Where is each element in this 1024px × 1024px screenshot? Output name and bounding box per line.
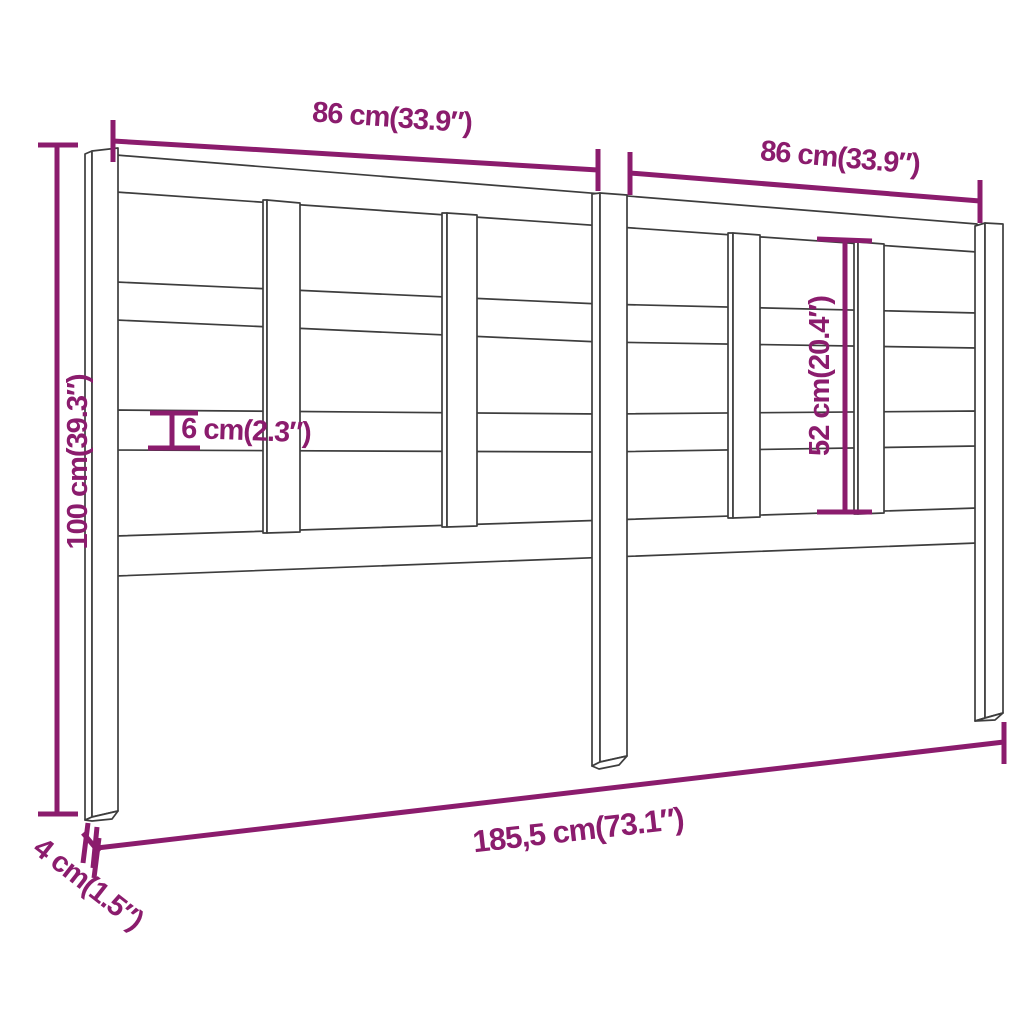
vertical-divider-4 (854, 242, 884, 514)
right-post (975, 223, 1003, 721)
dimension-overall-width: 185,5 cm(73.1″) (93, 722, 1004, 868)
dimension-label-overall-width: 185,5 cm(73.1″) (471, 801, 685, 860)
upper-slat (116, 282, 977, 348)
headboard-dimension-drawing: 86 cm(33.9″) 86 cm(33.9″) 100 cm(39.3″) … (0, 0, 1024, 1024)
bottom-rail (116, 508, 977, 576)
dimension-post-depth: 4 cm(1.5″) (27, 823, 149, 937)
dimension-label-overall-height: 100 cm(39.3″) (62, 374, 94, 549)
vertical-divider-1 (263, 200, 300, 533)
dimension-line (630, 173, 980, 201)
headboard-structure (85, 148, 1003, 821)
dimension-label-inner-opening-height: 52 cm(20.4″) (804, 296, 836, 456)
dimension-label-top-right-width: 86 cm(33.9″) (759, 135, 921, 181)
dimension-slat-height: 6 cm(2.3″) (148, 413, 312, 450)
dimension-label-top-left-width: 86 cm(33.9″) (311, 96, 473, 139)
dimension-tick (817, 239, 872, 241)
middle-post (592, 193, 627, 769)
vertical-divider-3 (728, 233, 760, 518)
vertical-divider-2 (442, 213, 477, 527)
dimension-label-post-depth: 4 cm(1.5″) (27, 831, 149, 936)
diagram-stage: 86 cm(33.9″) 86 cm(33.9″) 100 cm(39.3″) … (0, 0, 1024, 1024)
dimension-tick (83, 823, 88, 863)
dimension-label-slat-height: 6 cm(2.3″) (181, 413, 312, 450)
